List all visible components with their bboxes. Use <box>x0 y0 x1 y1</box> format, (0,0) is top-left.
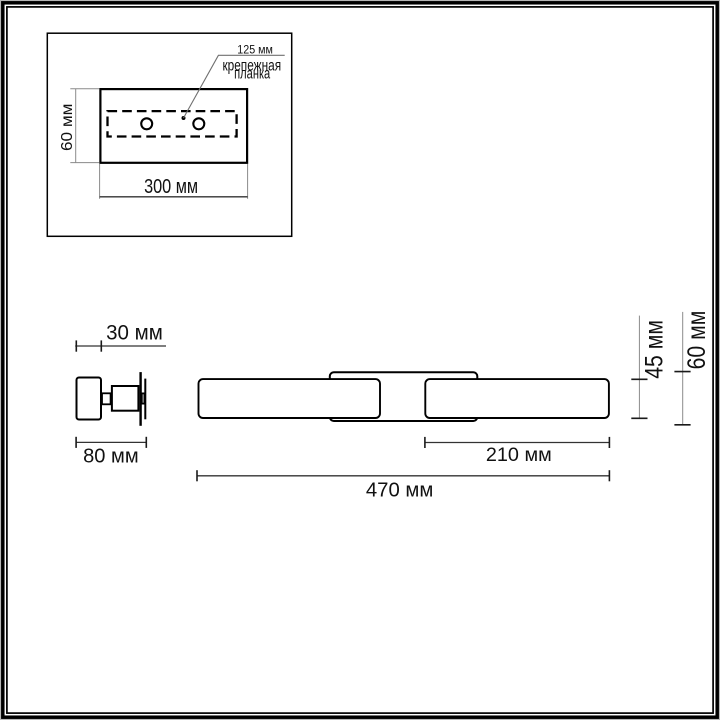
svg-text:60 мм: 60 мм <box>59 104 76 152</box>
svg-text:470 мм: 470 мм <box>366 478 434 501</box>
svg-text:210 мм: 210 мм <box>486 445 552 466</box>
svg-text:45 мм: 45 мм <box>641 320 669 379</box>
svg-text:300 мм: 300 мм <box>144 176 198 198</box>
svg-text:60 мм: 60 мм <box>683 311 711 370</box>
svg-text:80 мм: 80 мм <box>83 446 139 468</box>
svg-text:планка: планка <box>234 66 270 83</box>
svg-text:125 мм: 125 мм <box>237 43 273 57</box>
svg-text:30 мм: 30 мм <box>106 321 163 344</box>
